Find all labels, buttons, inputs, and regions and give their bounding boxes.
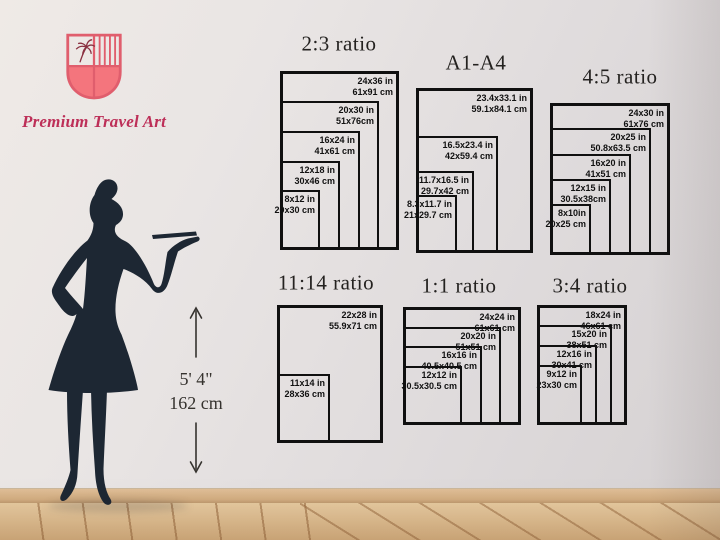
size-inches: 8.3x11.7 in	[404, 199, 452, 210]
size-label-20x30-in: 20x30 in51x76cm	[336, 103, 377, 127]
size-label-23-4x33-1-in: 23.4x33.1 in59.1x84.1 cm	[471, 91, 530, 115]
panel-title-a1-a4: A1-A4	[446, 51, 507, 76]
size-inches: 8x10in	[545, 208, 586, 219]
size-inches: 24x36 in	[352, 76, 393, 87]
height-indicator: 5' 4" 162 cm	[150, 305, 242, 415]
panel-title-2-3-ratio: 2:3 ratio	[301, 32, 376, 57]
size-label-16x24-in: 16x24 in41x61 cm	[314, 133, 358, 157]
size-inches: 16x16 in	[421, 350, 477, 361]
size-inches: 15x20 in	[566, 329, 607, 340]
size-rect-8-3x11-7-in: 8.3x11.7 in21x29.7 cm	[416, 195, 457, 253]
size-inches: 16x20 in	[585, 158, 626, 169]
size-cm: 30x46 cm	[294, 176, 335, 187]
size-label-9x12-in: 9x12 in23x30 cm	[536, 367, 580, 391]
size-inches: 20x20 in	[455, 331, 496, 342]
size-label-24x30-in: 24x30 in61x76 cm	[623, 106, 667, 130]
size-cm: 61x91 cm	[352, 87, 393, 98]
size-label-24x36-in: 24x36 in61x91 cm	[352, 74, 396, 98]
size-label-16-5x23-4-in: 16.5x23.4 in42x59.4 cm	[442, 138, 496, 162]
palm-tree-shield-icon	[64, 30, 124, 104]
model-height-metric: 162 cm	[150, 391, 242, 415]
size-cm: 28x36 cm	[284, 389, 325, 400]
brand-logo: Premium Travel Art	[14, 30, 174, 132]
size-inches: 22x28 in	[329, 310, 377, 321]
brand-name: Premium Travel Art	[14, 112, 174, 132]
floor-planks	[300, 503, 720, 540]
panel-title-3-4-ratio: 3:4 ratio	[552, 274, 627, 299]
print-size-guide-image: Premium Travel Art 5' 4" 162 cm 2:3 rati…	[0, 0, 720, 540]
size-label-12x15-in: 12x15 in30.5x38cm	[560, 181, 609, 205]
size-inches: 18x24 in	[580, 310, 621, 321]
panel-title-11-14-ratio: 11:14 ratio	[278, 271, 374, 296]
size-label-12x18-in: 12x18 in30x46 cm	[294, 163, 338, 187]
size-inches: 11x14 in	[284, 378, 325, 389]
size-rect-11x14-in: 11x14 in28x36 cm	[277, 374, 330, 443]
size-cm: 20x30 cm	[274, 205, 315, 216]
size-inches: 12x12 in	[401, 370, 457, 381]
panel-title-1-1-ratio: 1:1 ratio	[421, 274, 496, 299]
size-rect-8x10in: 8x10in20x25 cm	[550, 204, 591, 255]
model-height-imperial: 5' 4"	[150, 367, 242, 391]
size-label-22x28-in: 22x28 in55.9x71 cm	[329, 308, 380, 332]
size-inches: 20x30 in	[336, 105, 374, 116]
size-inches: 12x18 in	[294, 165, 335, 176]
size-inches: 24x30 in	[623, 108, 664, 119]
size-inches: 16x24 in	[314, 135, 355, 146]
panel-title-4-5-ratio: 4:5 ratio	[582, 65, 657, 90]
size-cm: 51x76cm	[336, 116, 374, 127]
size-cm: 20x25 cm	[545, 219, 586, 230]
size-inches: 12x15 in	[560, 183, 606, 194]
size-cm: 55.9x71 cm	[329, 321, 377, 332]
size-label-16x20-in: 16x20 in41x51 cm	[585, 156, 629, 180]
size-rect-9x12-in: 9x12 in23x30 cm	[537, 365, 582, 425]
size-inches: 20x25 in	[590, 132, 646, 143]
size-cm: 21x29.7 cm	[404, 210, 452, 221]
size-rect-8x12-in: 8x12 in20x30 cm	[280, 190, 320, 250]
size-cm: 50.8x63.5 cm	[590, 143, 646, 154]
size-inches: 8x12 in	[274, 194, 315, 205]
size-cm: 59.1x84.1 cm	[471, 104, 527, 115]
size-label-8x12-in: 8x12 in20x30 cm	[274, 192, 318, 216]
size-inches: 9x12 in	[536, 369, 577, 380]
size-label-20x25-in: 20x25 in50.8x63.5 cm	[590, 130, 649, 154]
size-inches: 12x16 in	[551, 349, 592, 360]
size-cm: 23x30 cm	[536, 380, 577, 391]
size-label-11-7x16-5-in: 11.7x16.5 in29.7x42 cm	[419, 173, 472, 197]
size-inches: 16.5x23.4 in	[442, 140, 493, 151]
size-inches: 23.4x33.1 in	[471, 93, 527, 104]
size-inches: 24x24 in	[474, 312, 515, 323]
size-cm: 30.5x30.5 cm	[401, 381, 457, 392]
size-label-8-3x11-7-in: 8.3x11.7 in21x29.7 cm	[404, 197, 455, 221]
size-cm: 41x61 cm	[314, 146, 355, 157]
size-label-11x14-in: 11x14 in28x36 cm	[284, 376, 328, 400]
size-label-12x12-in: 12x12 in30.5x30.5 cm	[401, 368, 460, 392]
size-rect-12x12-in: 12x12 in30.5x30.5 cm	[403, 366, 462, 425]
size-label-8x10in: 8x10in20x25 cm	[545, 206, 589, 230]
size-inches: 11.7x16.5 in	[419, 175, 469, 186]
size-cm: 42x59.4 cm	[442, 151, 493, 162]
